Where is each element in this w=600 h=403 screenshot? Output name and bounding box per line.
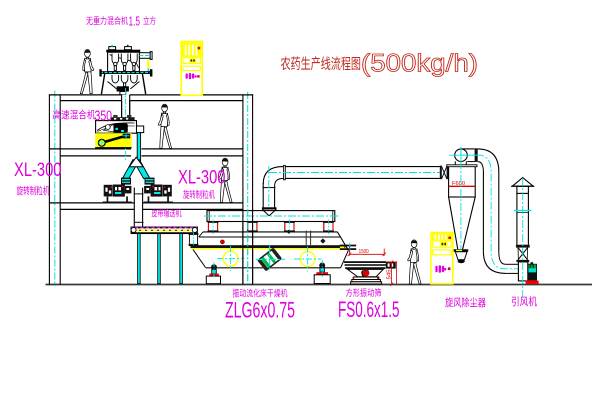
- svg-text:350: 350: [95, 109, 113, 125]
- svg-text:引风机: 引风机: [511, 295, 537, 308]
- svg-text:农药生产线流程图: 农药生产线流程图: [281, 56, 362, 73]
- svg-text:旋转制粒机: 旋转制粒机: [17, 185, 50, 198]
- svg-text:皮带输送机: 皮带输送机: [152, 208, 182, 219]
- svg-text:FS0.6x1.5: FS0.6x1.5: [338, 297, 400, 322]
- svg-text:545: 545: [386, 270, 392, 280]
- svg-text:旋转制粒机: 旋转制粒机: [183, 189, 215, 201]
- svg-text:1500: 1500: [359, 249, 369, 255]
- svg-text:XL-300: XL-300: [14, 160, 62, 181]
- svg-text:高速混合机: 高速混合机: [53, 109, 96, 122]
- svg-text:旋风除尘器: 旋风除尘器: [445, 296, 486, 309]
- svg-text:F600: F600: [452, 181, 465, 187]
- svg-text:1.5: 1.5: [129, 14, 141, 29]
- svg-text:立方: 立方: [143, 15, 156, 26]
- svg-text:ZLG6x0.75: ZLG6x0.75: [225, 298, 295, 323]
- svg-text:XL-300: XL-300: [178, 168, 226, 189]
- svg-text:无重力混合机: 无重力混合机: [86, 15, 128, 26]
- svg-text:(500kg/h): (500kg/h): [361, 50, 478, 78]
